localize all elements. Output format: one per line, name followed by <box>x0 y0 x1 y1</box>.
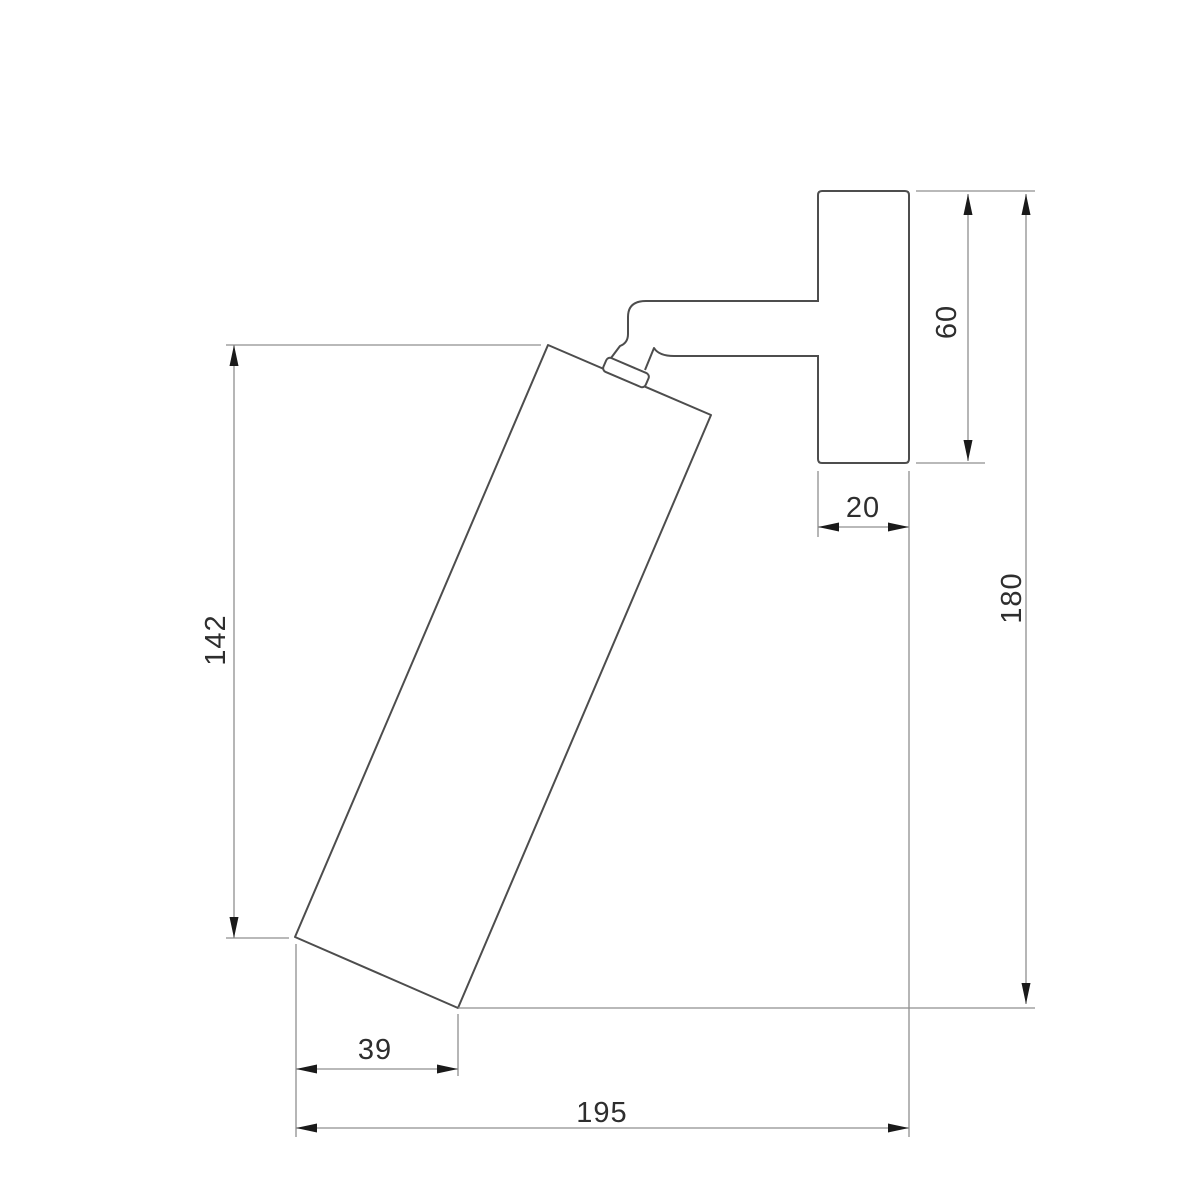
dimension-overall-height: 180 <box>996 194 1031 1004</box>
dimension-plate-height: 60 <box>931 194 973 461</box>
drawing-canvas: 142 60 180 20 39 <box>0 0 1200 1200</box>
extension-lines <box>226 191 1035 1137</box>
dim-label-39: 39 <box>358 1034 392 1066</box>
arrowhead-142-top <box>230 345 239 366</box>
arrowhead-60-top <box>964 194 973 215</box>
dimension-plate-depth: 20 <box>818 492 909 532</box>
arrowhead-60-bottom <box>964 440 973 461</box>
arrowhead-20-left <box>818 523 839 532</box>
dim-label-60: 60 <box>931 305 963 339</box>
arrowhead-39-left <box>296 1065 317 1074</box>
arrowhead-195-left <box>296 1124 317 1133</box>
mounting-arm <box>611 301 819 370</box>
cylinder-outline <box>295 345 711 1008</box>
dimension-overall-depth: 195 <box>296 1097 909 1133</box>
arrowhead-195-right <box>888 1124 909 1133</box>
lamp-body-cylinder <box>295 345 711 1008</box>
arrowhead-180-bottom <box>1022 983 1031 1004</box>
plate-outline <box>818 191 909 463</box>
dim-label-20: 20 <box>846 492 880 524</box>
arm-bottom-edge <box>645 348 819 370</box>
arrowhead-180-top <box>1022 194 1031 215</box>
dim-label-180: 180 <box>996 572 1028 623</box>
dimension-body-length: 142 <box>200 345 239 938</box>
arrowhead-20-right <box>888 523 909 532</box>
dim-label-142: 142 <box>200 614 232 665</box>
dimension-body-bottom-width: 39 <box>296 1034 458 1074</box>
arrowhead-39-right <box>437 1065 458 1074</box>
wall-mount-plate <box>818 191 909 463</box>
arrowhead-142-bottom <box>230 917 239 938</box>
dim-label-195: 195 <box>576 1097 627 1129</box>
arm-top-edge <box>611 301 819 358</box>
spotlight-dimension-drawing: 142 60 180 20 39 <box>0 0 1200 1200</box>
